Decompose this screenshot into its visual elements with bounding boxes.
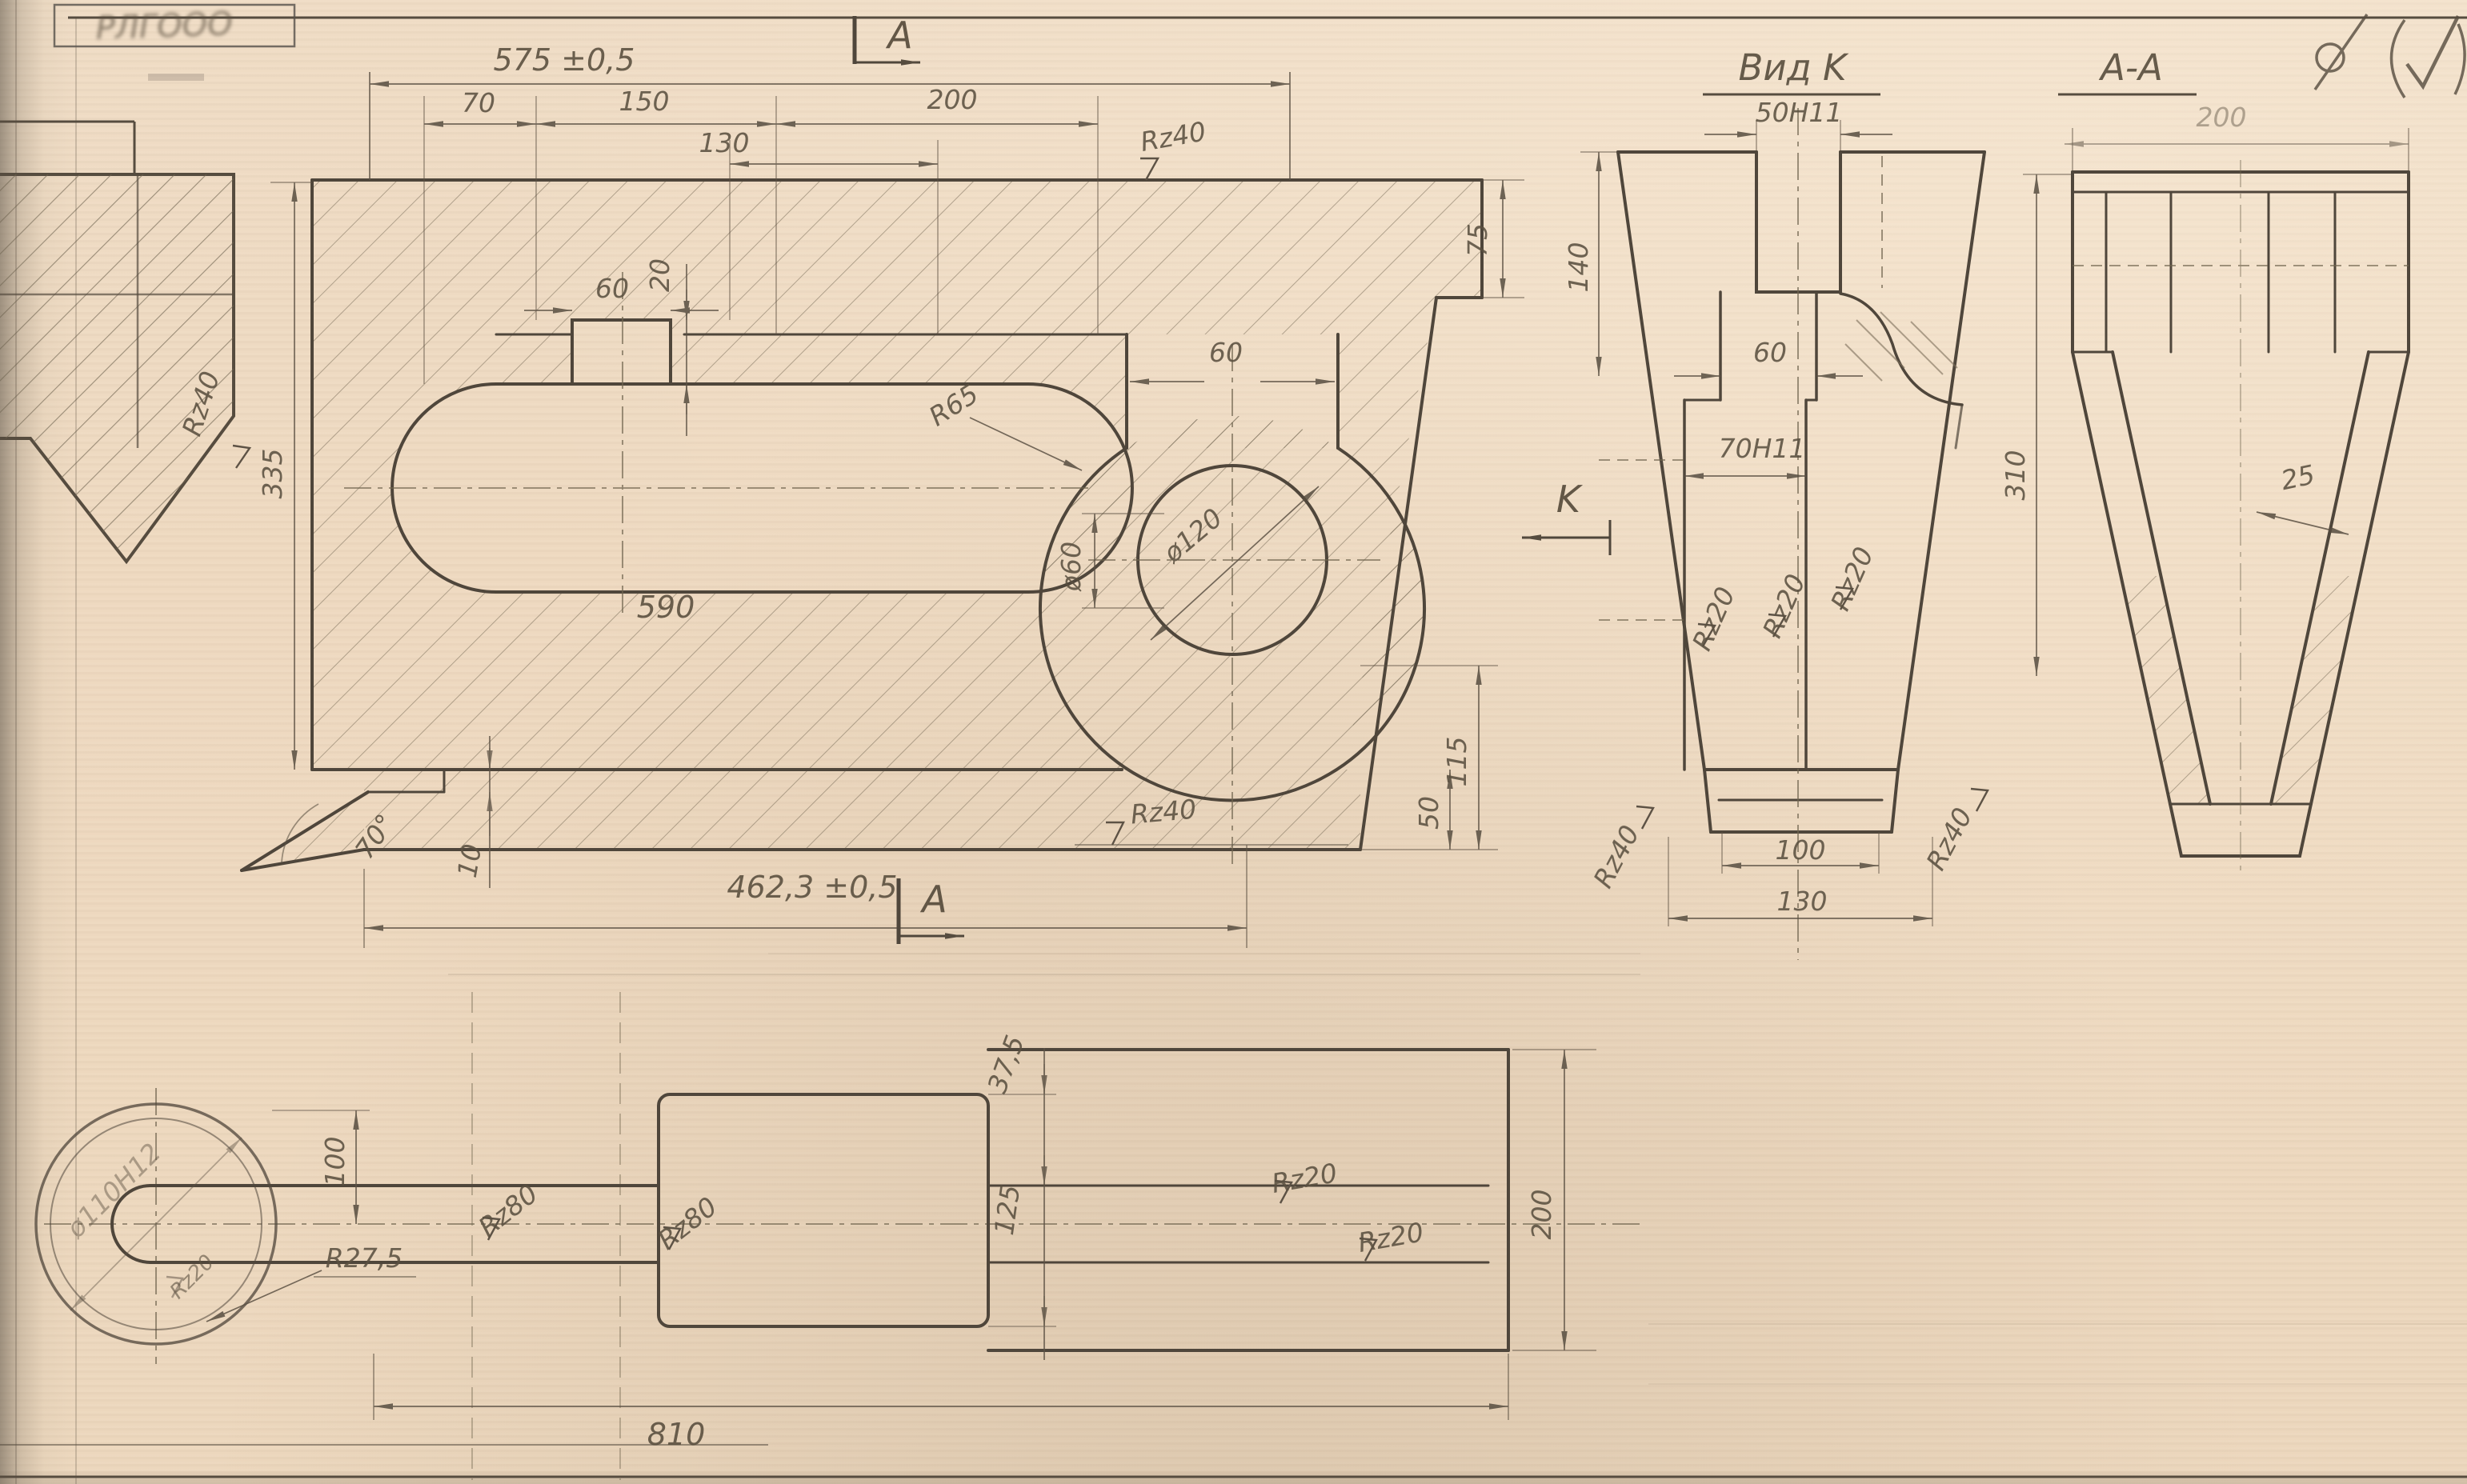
drawing-sheet: РЛГООО (0, 0, 2467, 1484)
dim-aa-25: 25 (2278, 458, 2317, 496)
roughness-handle-1: Rz80 (473, 1178, 544, 1242)
dim-k-60: 60 (1753, 337, 1787, 368)
roughness-k-1: Rz20 (1686, 582, 1741, 655)
dim-r275: R27,5 (326, 1242, 402, 1274)
dim-200: 200 (927, 84, 978, 115)
view-arrow-k-icon (1522, 520, 1610, 555)
stamp-box: РЛГООО (54, 5, 294, 81)
roughness-bar-2: Rz20 (1356, 1216, 1426, 1258)
section-label-a-bottom: A (919, 878, 947, 921)
roughness-bottom: Rz40 (1129, 794, 1197, 830)
dim-50: 50 (1413, 796, 1444, 830)
dim-590: 590 (637, 590, 695, 625)
dim-20: 20 (644, 258, 675, 292)
dim-70: 70 (462, 87, 495, 118)
roughness-k-right: Rz40 (1920, 802, 1978, 875)
roughness-k-3: Rz20 (1824, 542, 1880, 615)
drawing-canvas: РЛГООО (0, 0, 2467, 1484)
dim-140: 140 (1563, 242, 1594, 293)
roughness-handle-2: Rz80 (652, 1190, 723, 1255)
scan-artifacts (448, 954, 2467, 1384)
dim-aa-310: 310 (2000, 450, 2031, 501)
dim-70h11: 70H11 (1719, 433, 1806, 464)
approval-check-icon (2392, 16, 2465, 98)
dim-k-100: 100 (1776, 834, 1826, 866)
view-k-title: Вид K (1738, 46, 1849, 89)
dim-total-bottom: 462,3 ±0,5 (727, 870, 897, 905)
roughness-mark-icon (166, 1181, 1376, 1298)
dim-bar-200: 200 (1526, 1190, 1557, 1240)
aa-wall-hatch-left (2121, 576, 2210, 804)
dim-335: 335 (257, 449, 288, 499)
dim-125: 125 (988, 1182, 1026, 1237)
dim-75: 75 (1462, 223, 1493, 257)
roughness-top: Rz40 (1138, 115, 1208, 158)
bottom-view: ø110H12 Rz20 100 R27,5 Rz80 Rz80 37,5 12… (36, 1031, 1640, 1452)
dim-115: 115 (1441, 737, 1472, 787)
dim-130: 130 (699, 127, 750, 158)
roughness-k-2: Rz20 (1756, 570, 1812, 642)
roughness-mark-icon (1636, 587, 1988, 829)
partial-left-view (0, 122, 234, 562)
dim-150: 150 (619, 86, 670, 117)
stamp-text: РЛГООО (95, 6, 233, 47)
dim-100: 100 (319, 1137, 350, 1187)
dim-aa-200: 200 (2197, 102, 2247, 133)
dim-10: 10 (451, 842, 488, 880)
dim-d60: ø60 (1055, 542, 1087, 592)
section-aa-hidden (2073, 160, 2409, 872)
roughness-bar-1: Rz20 (1269, 1157, 1340, 1199)
dim-r65: R65 (923, 378, 984, 432)
view-k-outline (1618, 152, 1984, 832)
view-k-hatch (1845, 312, 1957, 381)
roughness-k-left: Rz40 (1587, 820, 1645, 893)
dim-neck-60: 60 (1209, 337, 1243, 368)
view-label-k: K (1556, 478, 1584, 521)
section-a-a: A-A (2000, 46, 2409, 872)
general-roughness-icon (2315, 14, 2367, 90)
dim-375: 37,5 (981, 1031, 1031, 1097)
dim-k-130: 130 (1777, 886, 1828, 917)
view-k: Вид K (1563, 46, 1988, 960)
dim-total-top: 575 ±0,5 (494, 42, 635, 78)
aa-wall-hatch-right (2271, 576, 2361, 804)
dim-810: 810 (647, 1417, 706, 1452)
dim-notch-60: 60 (595, 273, 629, 304)
stamp-smudge (148, 74, 204, 81)
dim-50h11: 50H11 (1756, 97, 1843, 128)
section-label-a-top: A (885, 14, 912, 57)
bottom-view-outline (36, 1050, 1508, 1350)
section-aa-title: A-A (2098, 46, 2163, 89)
